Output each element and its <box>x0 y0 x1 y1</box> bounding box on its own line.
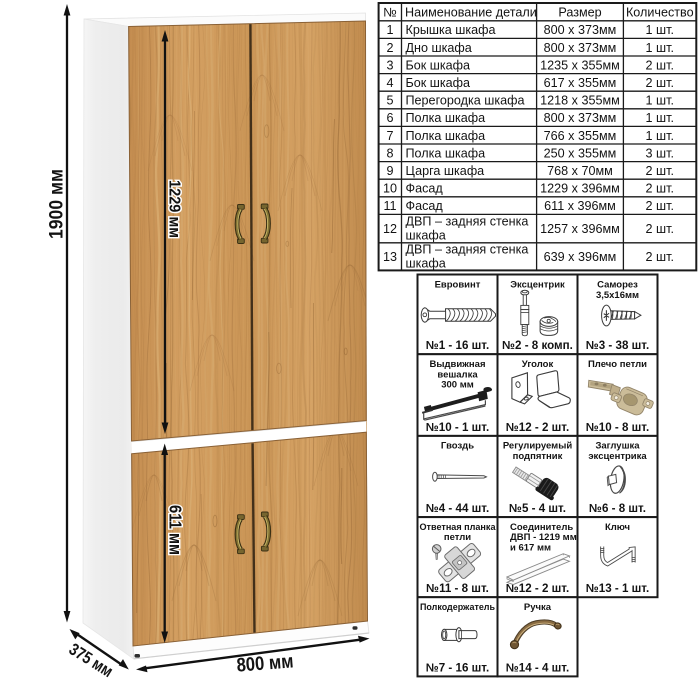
svg-text:и 617 мм: и 617 мм <box>510 543 551 554</box>
svg-text:№6 - 8 шт.: №6 - 8 шт. <box>589 502 646 515</box>
svg-text:ДВП – задняя стенка: ДВП – задняя стенка <box>406 243 529 257</box>
svg-text:1257 х 396мм: 1257 х 396мм <box>540 222 620 236</box>
svg-text:1229 х 396мм: 1229 х 396мм <box>540 182 620 196</box>
svg-text:шкафа: шкафа <box>406 257 446 271</box>
svg-text:639 х 396мм: 639 х 396мм <box>544 250 617 264</box>
svg-text:№12 - 2 шт.: №12 - 2 шт. <box>506 421 569 434</box>
svg-text:4: 4 <box>386 76 393 90</box>
svg-text:800 х 373мм: 800 х 373мм <box>544 41 617 55</box>
svg-text:№2 - 8 комп.: №2 - 8 комп. <box>502 339 573 352</box>
svg-text:подпятник: подпятник <box>513 451 563 462</box>
svg-text:2 шт.: 2 шт. <box>646 164 674 178</box>
svg-text:Евровинт: Евровинт <box>435 280 481 291</box>
svg-text:1 шт.: 1 шт. <box>646 129 674 143</box>
svg-text:250 х 355мм: 250 х 355мм <box>544 146 617 160</box>
svg-text:617 х 355мм: 617 х 355мм <box>544 76 617 90</box>
svg-text:шкафа: шкафа <box>406 229 446 243</box>
svg-text:Ручка: Ручка <box>524 602 552 613</box>
svg-text:Полка шкафа: Полка шкафа <box>406 129 486 143</box>
svg-text:№1 - 16 шт.: №1 - 16 шт. <box>426 339 489 352</box>
svg-text:3 шт.: 3 шт. <box>646 146 674 160</box>
svg-text:Наименование детали: Наименование детали <box>405 6 537 20</box>
svg-text:766 х 355мм: 766 х 355мм <box>544 129 617 143</box>
svg-text:1: 1 <box>386 23 393 37</box>
svg-text:7: 7 <box>386 129 393 143</box>
svg-text:6: 6 <box>386 111 393 125</box>
svg-text:3,5х16мм: 3,5х16мм <box>596 290 639 301</box>
svg-text:Уголок: Уголок <box>522 359 554 370</box>
svg-text:2 шт.: 2 шт. <box>646 182 674 196</box>
svg-text:768 х 70мм: 768 х 70мм <box>547 164 613 178</box>
svg-text:2 шт.: 2 шт. <box>646 76 674 90</box>
svg-text:№13 - 1 шт.: №13 - 1 шт. <box>586 582 649 595</box>
svg-text:2 шт.: 2 шт. <box>646 58 674 72</box>
svg-text:Бок шкафа: Бок шкафа <box>406 58 471 72</box>
svg-text:№10 - 1 шт.: №10 - 1 шт. <box>426 421 489 434</box>
svg-text:ДВП – задняя стенка: ДВП – задняя стенка <box>406 215 529 229</box>
svg-text:Количество: Количество <box>626 6 694 20</box>
svg-text:Полка шкафа: Полка шкафа <box>406 146 486 160</box>
svg-text:2 шт.: 2 шт. <box>646 199 674 213</box>
svg-text:1 шт.: 1 шт. <box>646 41 674 55</box>
svg-text:800 мм: 800 мм <box>236 650 294 676</box>
svg-text:№5 - 4 шт.: №5 - 4 шт. <box>509 502 566 515</box>
svg-text:2 шт.: 2 шт. <box>646 250 674 264</box>
svg-text:Перегородка шкафа: Перегородка шкафа <box>406 94 525 108</box>
svg-text:Фасад: Фасад <box>406 199 444 213</box>
svg-text:300 мм: 300 мм <box>441 380 474 391</box>
svg-text:3: 3 <box>386 58 393 72</box>
svg-text:№10 - 8 шт.: №10 - 8 шт. <box>586 421 649 434</box>
svg-text:13: 13 <box>383 250 397 264</box>
svg-text:Плечо петли: Плечо петли <box>588 359 647 370</box>
svg-text:5: 5 <box>386 94 393 108</box>
svg-text:№: № <box>383 6 397 20</box>
svg-text:Крышка шкафа: Крышка шкафа <box>406 23 496 37</box>
svg-text:800 х 373мм: 800 х 373мм <box>544 111 617 125</box>
svg-text:Размер: Размер <box>558 6 601 20</box>
svg-text:2 шт.: 2 шт. <box>646 222 674 236</box>
svg-text:1 шт.: 1 шт. <box>646 94 674 108</box>
svg-text:10: 10 <box>383 182 397 196</box>
svg-text:1900 мм: 1900 мм <box>46 169 68 239</box>
svg-text:эксцентрика: эксцентрика <box>588 451 647 462</box>
svg-text:Полка шкафа: Полка шкафа <box>406 111 486 125</box>
svg-text:Полкодержатель: Полкодержатель <box>420 602 495 613</box>
svg-text:Бок шкафа: Бок шкафа <box>406 76 471 90</box>
svg-text:Эксцентрик: Эксцентрик <box>510 280 565 291</box>
svg-text:Дно шкафа: Дно шкафа <box>406 41 472 55</box>
svg-text:№11 - 8 шт.: №11 - 8 шт. <box>426 582 489 595</box>
svg-text:1229 мм: 1229 мм <box>166 180 183 238</box>
svg-text:12: 12 <box>383 222 397 236</box>
svg-text:611 мм: 611 мм <box>166 505 186 555</box>
svg-text:№3 - 38 шт.: №3 - 38 шт. <box>586 339 649 352</box>
svg-text:9: 9 <box>386 164 393 178</box>
svg-text:800 х 373мм: 800 х 373мм <box>544 23 617 37</box>
svg-text:Фасад: Фасад <box>406 182 444 196</box>
svg-text:Гвоздь: Гвоздь <box>441 441 474 452</box>
svg-text:1 шт.: 1 шт. <box>646 23 674 37</box>
svg-text:1 шт.: 1 шт. <box>646 111 674 125</box>
svg-text:8: 8 <box>386 146 393 160</box>
svg-text:2: 2 <box>386 41 393 55</box>
svg-text:11: 11 <box>383 199 396 213</box>
svg-text:Царга шкафа: Царга шкафа <box>406 164 485 178</box>
svg-text:1218 х 355мм: 1218 х 355мм <box>540 94 620 108</box>
svg-text:Ключ: Ключ <box>605 522 630 533</box>
svg-text:петли: петли <box>444 532 471 543</box>
svg-text:611 х 396мм: 611 х 396мм <box>544 199 616 213</box>
svg-text:1235 х 355мм: 1235 х 355мм <box>540 58 620 72</box>
svg-text:№14 - 4 шт.: №14 - 4 шт. <box>506 661 569 674</box>
svg-text:№7 - 16 шт.: №7 - 16 шт. <box>426 661 489 674</box>
svg-text:№4 - 44 шт.: №4 - 44 шт. <box>426 502 489 515</box>
